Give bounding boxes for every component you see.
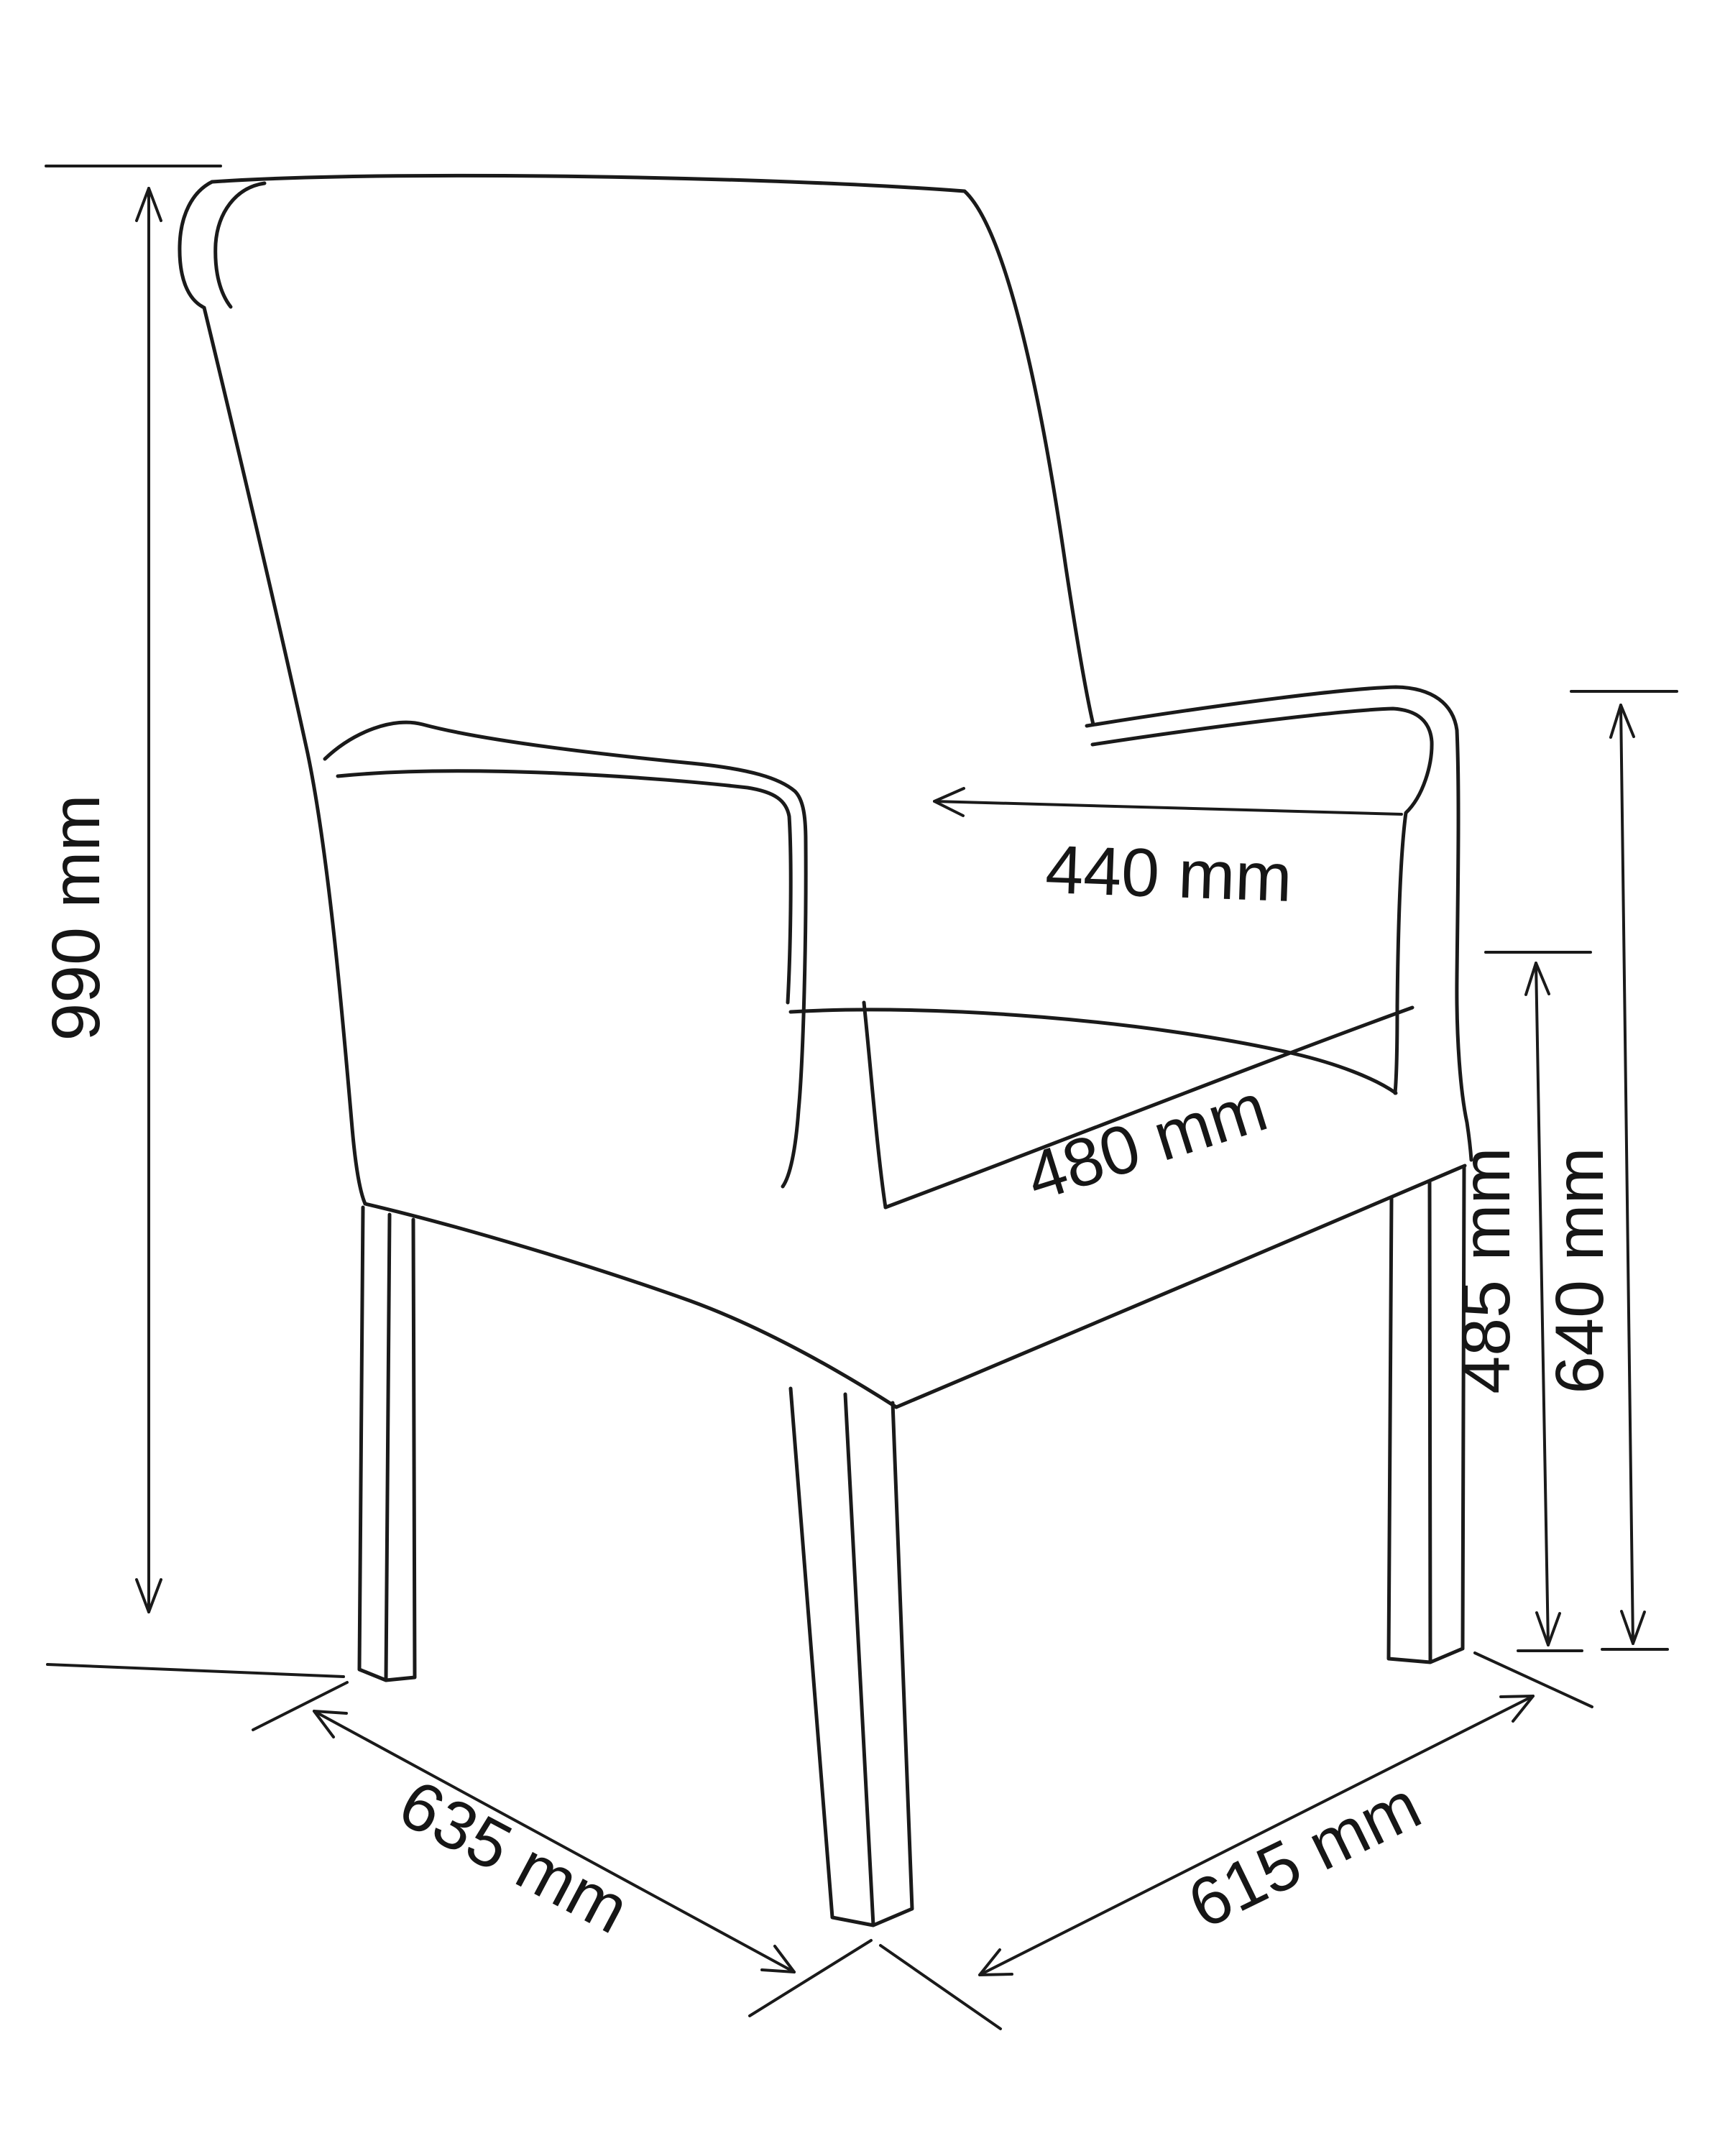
dimension-seat-width: 480 mm [1018,1069,1276,1215]
chair-back-front-edge [204,308,365,1204]
armrest-height-label: 640 mm [1542,1147,1618,1393]
depth-label: 635 mm [387,1765,641,1948]
dimension-armrest-height: 640 mm [1542,691,1677,1649]
dimension-depth: 635 mm [253,1682,871,2016]
dimension-width: 615 mm [880,1653,1592,2029]
dimension-backrest-width: 440 mm [934,788,1402,916]
diagram-page: 990 mm 440 mm 480 mm 485 mm 640 mm 635 m… [0,0,1725,2156]
chair-seat-left-corner [864,1003,885,1207]
seat-width-label: 480 mm [1018,1069,1276,1215]
overall-height-extension-bottom [47,1664,344,1677]
chair-back-outline [212,175,1093,724]
chair-skirt-left [365,1204,896,1407]
backrest-width-label: 440 mm [1044,831,1294,916]
chair-right-arm-outer [1087,687,1471,1160]
chair-left-arm-outer [325,722,806,1187]
chair-back-scroll-inner [216,183,264,307]
dimension-overall-height: 990 mm [38,166,344,1677]
chair-front-left-leg [791,1388,912,1925]
overall-height-label: 990 mm [38,794,114,1041]
width-extension-right [1475,1653,1592,1707]
chair-skirt-front [896,1166,1465,1407]
chair-seat-crease [791,1010,1396,1093]
chair-back-scroll-outer [180,182,212,307]
chair-left-arm-inner [338,771,791,1003]
chair-dimension-diagram: 990 mm 440 mm 480 mm 485 mm 640 mm 635 m… [0,0,1725,2156]
chair-drawing [180,175,1471,1925]
chair-rear-left-leg [359,1207,415,1680]
depth-extension-front [750,1940,871,2016]
seat-height-label: 485 mm [1448,1147,1524,1393]
armrest-height-line [1621,705,1633,1644]
width-extension-left [880,1945,1000,2029]
backrest-width-line [934,801,1402,814]
